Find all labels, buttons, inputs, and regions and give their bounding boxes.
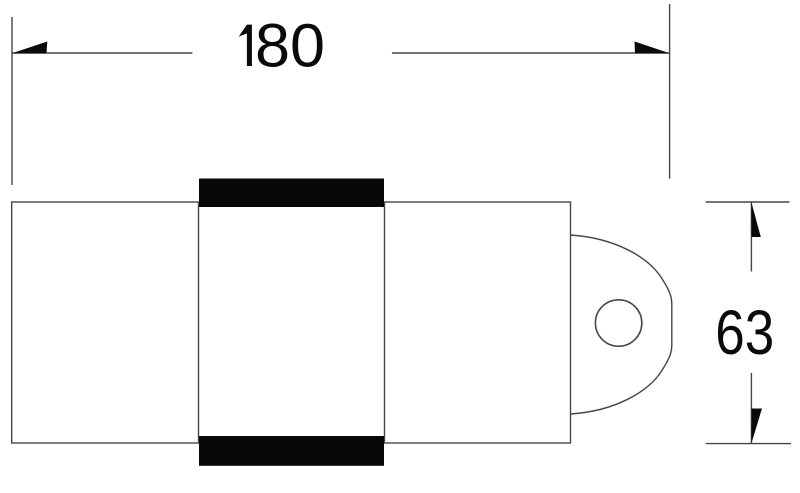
svg-text:63: 63	[715, 298, 774, 368]
svg-text:80: 80	[255, 12, 325, 81]
